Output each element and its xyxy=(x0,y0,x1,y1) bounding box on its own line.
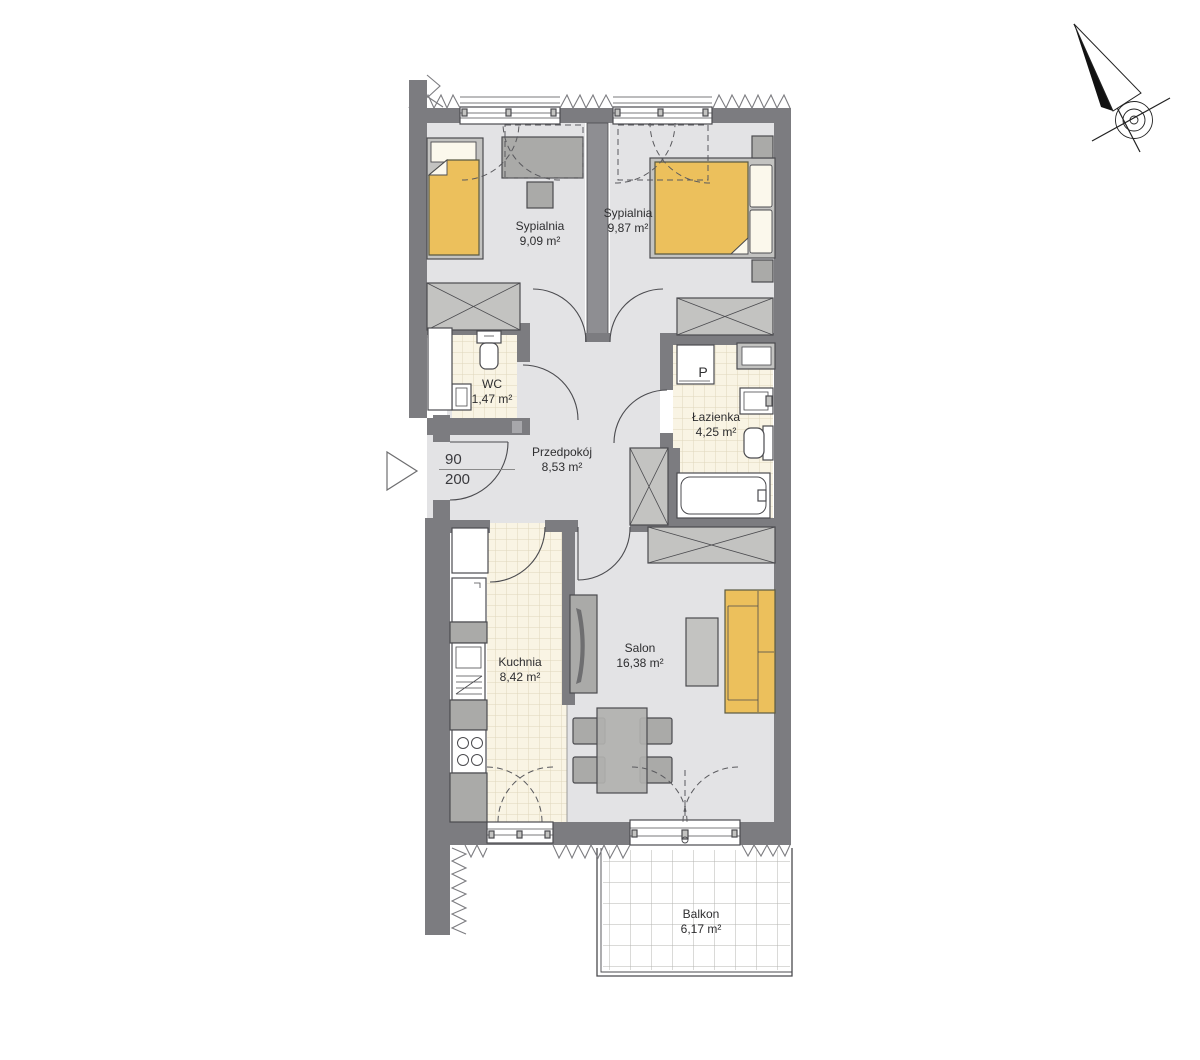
room-label-bedroom1: Sypialnia 9,09 m² xyxy=(516,219,565,249)
kitchen-window xyxy=(487,822,553,843)
north-arrow-icon xyxy=(1074,24,1170,152)
wc-sink xyxy=(452,384,471,410)
washing-machine-label: P xyxy=(698,364,707,380)
bathroom-washing-machine xyxy=(677,345,714,384)
room-label-bathroom: Łazienka 4,25 m² xyxy=(692,410,740,440)
door-height: 200 xyxy=(439,471,515,488)
kitchen-units xyxy=(450,528,488,822)
bedroom1-bed xyxy=(427,138,483,259)
room-name: Sypialnia xyxy=(604,206,653,220)
tv-stand xyxy=(570,595,597,693)
fridge xyxy=(452,578,486,622)
kitchen-shaft xyxy=(452,528,488,573)
room-name: Kuchnia xyxy=(498,655,541,669)
room-name: Balkon xyxy=(683,907,720,921)
wall-wc-bottom xyxy=(427,418,522,435)
bedroom2-nightstand-top xyxy=(752,136,773,158)
sofa xyxy=(725,590,775,713)
room-name: Łazienka xyxy=(692,410,740,424)
balcony-door xyxy=(630,820,740,845)
wall-left-upper xyxy=(409,80,427,418)
room-area: 9,87 m² xyxy=(608,221,649,235)
coffee-table xyxy=(686,618,718,686)
kitchen-counter xyxy=(450,700,487,730)
bathroom-toilet xyxy=(744,426,773,460)
room-label-kitchen: Kuchnia 8,42 m² xyxy=(498,655,541,685)
wall-entry-bottom xyxy=(433,500,450,520)
room-label-balcony: Balkon 6,17 m² xyxy=(681,907,722,937)
room-area: 4,25 m² xyxy=(696,425,737,439)
door-width: 90 xyxy=(439,451,515,468)
bathroom-sink xyxy=(740,388,773,414)
wall-cap-wc xyxy=(512,421,522,433)
room-name: Sypialnia xyxy=(516,219,565,233)
entry-door-dimension: 90 200 xyxy=(439,451,515,489)
wc-shaft xyxy=(428,328,452,410)
room-area: 8,53 m² xyxy=(542,460,583,474)
floor-plan-drawing xyxy=(0,0,1200,1060)
dimension-line xyxy=(439,469,515,470)
bedroom2-window xyxy=(613,97,712,124)
room-name: Salon xyxy=(625,641,656,655)
room-area: 16,38 m² xyxy=(616,656,663,670)
floor-plan-page: Sypialnia 9,09 m² Sypialnia 9,87 m² WC 1… xyxy=(0,0,1200,1060)
wall-bath-left-top xyxy=(660,345,673,390)
room-label-hallway: Przedpokój 8,53 m² xyxy=(532,445,592,475)
room-label-bedroom2: Sypialnia 9,87 m² xyxy=(604,206,653,236)
wall-between-bedrooms-cap xyxy=(585,333,610,342)
room-area: 9,09 m² xyxy=(520,234,561,248)
room-area: 6,17 m² xyxy=(681,922,722,936)
wall-wc-right-top xyxy=(517,335,530,362)
room-area: 1,47 m² xyxy=(472,392,513,406)
stove xyxy=(452,730,486,773)
kitchen-sink xyxy=(452,643,485,700)
wall-left-lower xyxy=(425,518,450,935)
room-name: WC xyxy=(482,377,502,391)
entry-marker-icon xyxy=(387,452,417,490)
room-area: 8,42 m² xyxy=(500,670,541,684)
bedroom2-bed xyxy=(650,158,775,258)
bathroom-cabinet xyxy=(737,343,775,369)
room-label-living: Salon 16,38 m² xyxy=(616,641,663,671)
room-name: Przedpokój xyxy=(532,445,592,459)
kitchen-counter xyxy=(450,622,487,643)
wc-toilet xyxy=(477,331,501,369)
dining-table xyxy=(597,708,647,793)
wall-bath-left-mid xyxy=(660,433,673,448)
bedroom1-window xyxy=(460,97,560,124)
bedroom2-nightstand-bottom xyxy=(752,260,773,282)
wall-right xyxy=(774,108,791,845)
room-label-wc: WC 1,47 m² xyxy=(472,377,513,407)
bathroom-bathtub xyxy=(677,473,770,518)
kitchen-counter xyxy=(450,773,487,822)
bedroom1-stool xyxy=(527,182,553,208)
